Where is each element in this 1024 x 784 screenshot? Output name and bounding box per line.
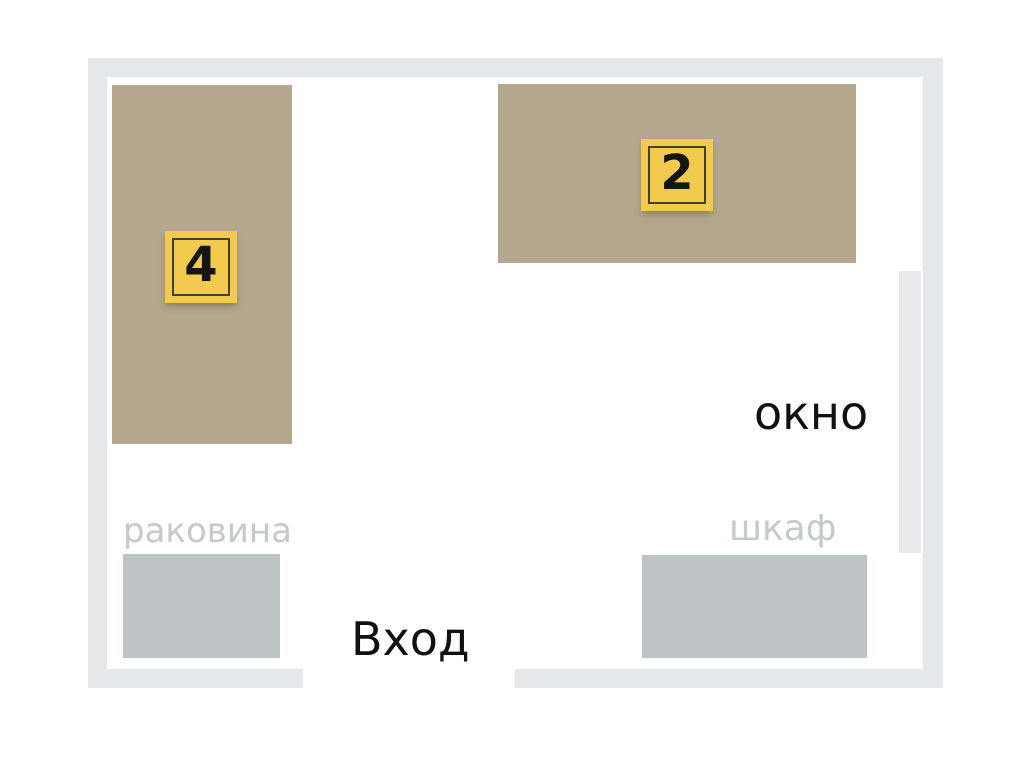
seat-marker-2[interactable]: 2	[641, 139, 713, 211]
entrance-label: Вход	[351, 616, 470, 662]
cabinet	[642, 555, 867, 658]
wall-bottom-left	[88, 669, 303, 688]
wall-left	[88, 58, 107, 688]
wall-bottom-right	[515, 669, 943, 688]
window-opening	[899, 271, 921, 553]
seat-marker-2-frame: 2	[648, 146, 706, 204]
sink	[123, 554, 280, 658]
cabinet-label: шкаф	[729, 511, 837, 547]
seat-marker-4-number: 4	[184, 241, 217, 293]
seat-marker-4-frame: 4	[172, 238, 230, 296]
wall-top	[88, 58, 943, 77]
seat-marker-4[interactable]: 4	[165, 231, 237, 303]
floor-plan: 4 2 раковина шкаф окно Вход	[0, 0, 1024, 784]
seat-marker-2-number: 2	[660, 149, 693, 201]
window-label: окно	[754, 390, 868, 436]
wall-right	[923, 58, 943, 688]
sink-label: раковина	[123, 514, 292, 548]
